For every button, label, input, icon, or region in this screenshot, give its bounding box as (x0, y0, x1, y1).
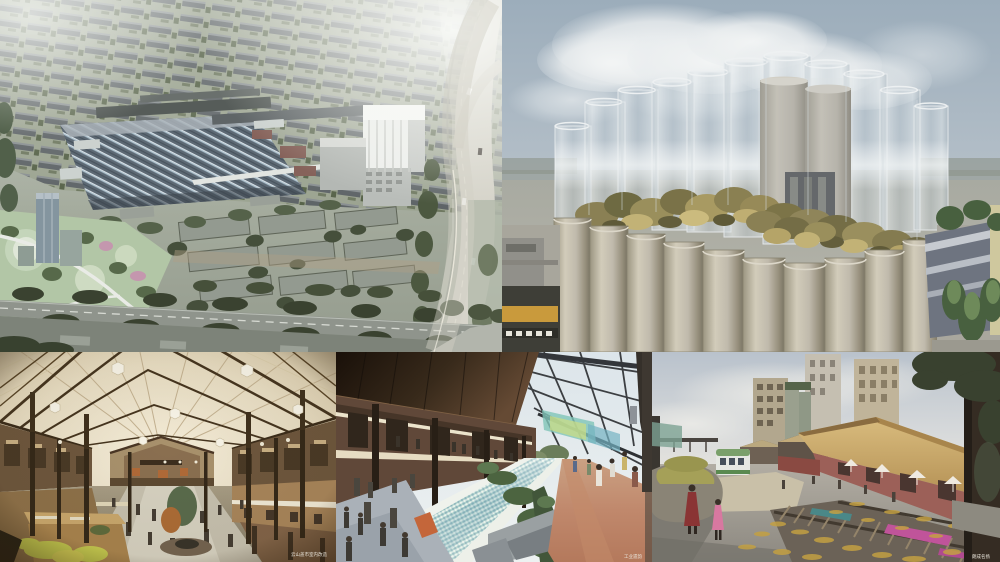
svg-text:云山盖市室内改造: 云山盖市室内改造 (291, 551, 327, 558)
svg-text:朗成名扬: 朗成名扬 (972, 553, 990, 560)
svg-text:工业遗韵: 工业遗韵 (624, 553, 642, 560)
